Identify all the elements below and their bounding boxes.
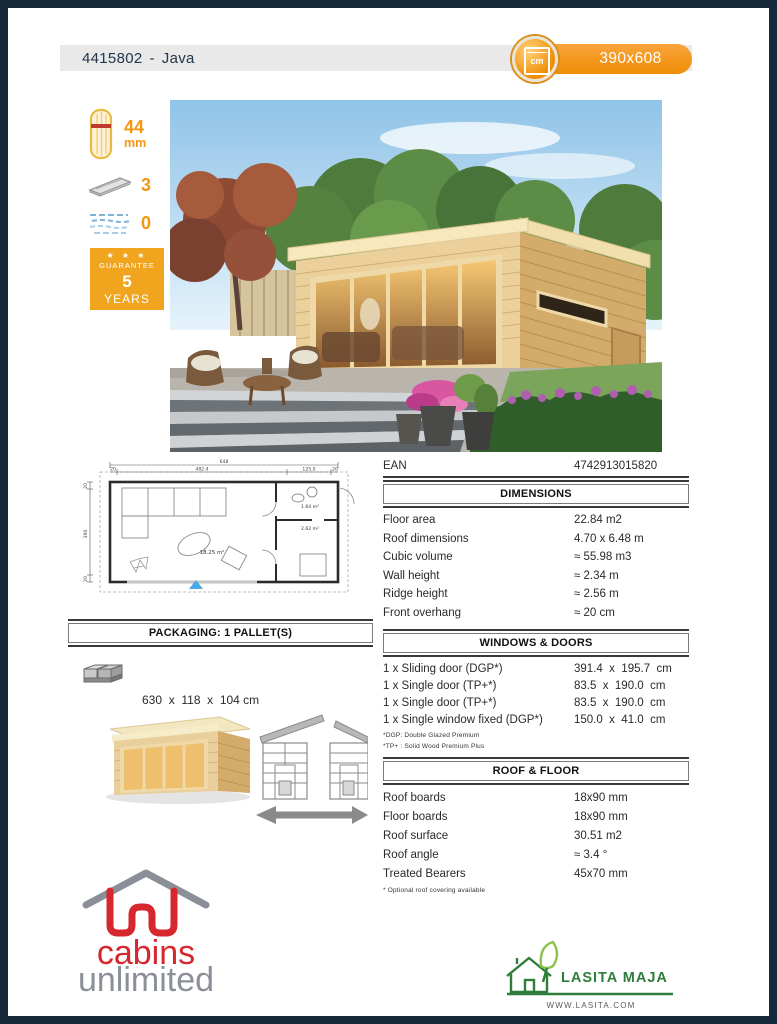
row-value: 391.4 x 195.7 cm (574, 663, 672, 675)
table-row: Front overhang≈ 20 cm (383, 604, 689, 628)
roof-floor-rows: Roof boards18x90 mm Floor boards18x90 mm… (383, 785, 689, 894)
row-label: Roof dimensions (383, 533, 574, 545)
footnote-tp: *TP+ : Solid Wood Premium Plus (383, 743, 689, 755)
row-label: Cubic volume (383, 551, 574, 563)
roof-icon (86, 873, 206, 905)
row-label: 1 x Single door (TP+*) (383, 697, 574, 709)
table-row: 1 x Single door (TP+*)83.5 x 190.0 cm (383, 694, 689, 711)
product-code: 4415802 (82, 50, 143, 67)
table-row: Roof angle≈ 3.4 ° (383, 845, 689, 864)
row-label: Roof boards (383, 792, 574, 804)
windows-doors-title: WINDOWS & DOORS (383, 633, 689, 653)
row-value: 18x90 mm (574, 811, 628, 823)
dimensions-title: DIMENSIONS (383, 484, 689, 504)
pallet-icon (82, 655, 124, 685)
room-bottom-area: 2.62 m² (301, 526, 319, 532)
packaging-section-header: PACKAGING: 1 PALLET(S) (68, 619, 373, 647)
unlimited-wordmark: unlimited (78, 961, 214, 995)
footnote-roof-covering: * Optional roof covering available (383, 887, 689, 894)
row-value: 83.5 x 190.0 cm (574, 680, 665, 692)
table-row: 1 x Single door (TP+*)83.5 x 190.0 cm (383, 677, 689, 694)
dimensions-rows: Floor area22.84 m2 Roof dimensions4.70 x… (383, 508, 689, 627)
table-row: Roof surface30.51 m2 (383, 826, 689, 845)
guarantee-badge: ★ ★ ★ GUARANTEE 5 YEARS (90, 248, 164, 310)
table-row: Roof boards18x90 mm (383, 788, 689, 807)
glazing-lines-icon (88, 210, 132, 236)
ean-value: 4742913015820 (574, 460, 657, 472)
cm-unit-label: cm (524, 47, 550, 75)
cabin-drawings (100, 695, 368, 827)
table-row: Ridge height≈ 2.56 m (383, 585, 689, 604)
lasita-wordmark: LASITA MAJA (561, 970, 668, 986)
room-top-area: 1.64 m² (301, 504, 319, 510)
row-label: 1 x Sliding door (DGP*) (383, 663, 574, 675)
table-row: Cubic volume≈ 55.98 m3 (383, 548, 689, 567)
room-main-area: 18.25 m² (200, 549, 225, 556)
row-value: ≈ 3.4 ° (574, 849, 607, 861)
row-value: 18x90 mm (574, 792, 628, 804)
roof-floor-title: ROOF & FLOOR (383, 761, 689, 781)
floor-plan: 648 20 482.4 125.0 20 20 390 20 18.25 m²… (72, 458, 372, 620)
guarantee-stars: ★ ★ ★ (90, 251, 164, 261)
row-value: 4.70 x 6.48 m (574, 533, 644, 545)
roof-panel-icon (88, 172, 132, 198)
row-label: Floor boards (383, 811, 574, 823)
row-value: ≈ 55.98 m3 (574, 551, 631, 563)
leaf-icon (541, 942, 557, 968)
packaging-title: PACKAGING: 1 PALLET(S) (68, 623, 373, 643)
header-separator: - (150, 50, 155, 67)
spec-sheet-page: 4415802 - Java 390x608 cm 44 mm (0, 0, 777, 1024)
cm-measure-icon: cm (512, 36, 558, 82)
table-row: Roof dimensions4.70 x 6.48 m (383, 530, 689, 549)
plan-dim-left-pad: 20 (110, 467, 116, 473)
glazing-value: 0 (141, 214, 151, 232)
row-value: 45x70 mm (574, 868, 628, 880)
row-label: Treated Bearers (383, 868, 574, 880)
table-row: Wall height≈ 2.34 m (383, 567, 689, 586)
table-row: Floor area22.84 m2 (383, 511, 689, 530)
roof-floor-section-header: ROOF & FLOOR (383, 757, 689, 785)
plan-dim-vpad-bottom: 20 (83, 576, 89, 582)
wall-thickness-unit: mm (124, 137, 146, 150)
row-label: 1 x Single door (TP+*) (383, 680, 574, 692)
ean-label: EAN (383, 460, 574, 472)
row-value: 83.5 x 190.0 cm (574, 697, 665, 709)
row-label: Roof surface (383, 830, 574, 842)
row-value: ≈ 20 cm (574, 607, 615, 619)
row-label: Wall height (383, 570, 574, 582)
row-value: 150.0 x 41.0 cm (574, 714, 665, 726)
product-name: Java (162, 50, 195, 67)
guarantee-years-value: 5 (90, 271, 164, 292)
row-label: Floor area (383, 514, 574, 526)
guarantee-years-unit: YEARS (90, 292, 164, 307)
spec-tables: EAN 4742913015820 DIMENSIONS Floor area2… (383, 460, 689, 894)
table-row: Treated Bearers45x70 mm (383, 864, 689, 883)
plan-dim-height: 390 (83, 530, 89, 539)
row-label: Roof angle (383, 849, 574, 861)
row-value: 30.51 m2 (574, 830, 622, 842)
footnote-dgp: *DGP: Double Glazed Premium (383, 732, 689, 739)
log-profile-icon (88, 108, 115, 160)
product-photo (170, 100, 662, 452)
table-row: Floor boards18x90 mm (383, 807, 689, 826)
ean-row: EAN 4742913015820 (383, 460, 689, 478)
plan-dim-main: 482.4 (195, 467, 208, 473)
row-value: ≈ 2.56 m (574, 588, 619, 600)
plan-dim-total: 648 (220, 459, 229, 465)
dimensions-section-header: DIMENSIONS (383, 480, 689, 508)
plan-dim-side: 125.0 (302, 467, 315, 473)
cabin-mark-icon (110, 891, 174, 933)
lasita-url: WWW.LASITA.COM (546, 1001, 635, 1010)
size-badge-label: 390x608 (599, 50, 661, 68)
wall-thickness-number: 44 (124, 118, 146, 137)
cabins-unlimited-logo: cabins unlimited (58, 863, 243, 995)
lasita-maja-logo: LASITA MAJA WWW.LASITA.COM (503, 938, 678, 1014)
plan-dim-vpad-top: 20 (83, 483, 89, 489)
pallets-value: 3 (141, 176, 151, 194)
guarantee-label: GUARANTEE (90, 261, 164, 270)
size-badge: 390x608 (535, 44, 692, 74)
row-label: Front overhang (383, 607, 574, 619)
reversible-arrow-icon (256, 806, 368, 824)
windows-doors-section-header: WINDOWS & DOORS (383, 629, 689, 657)
wall-thickness-value: 44 mm (124, 118, 146, 150)
row-value: 22.84 m2 (574, 514, 622, 526)
row-label: Ridge height (383, 588, 574, 600)
row-value: ≈ 2.34 m (574, 570, 619, 582)
table-row: 1 x Single window fixed (DGP*)150.0 x 41… (383, 711, 689, 728)
windows-doors-rows: 1 x Sliding door (DGP*)391.4 x 195.7 cm … (383, 657, 689, 755)
plan-dim-right-pad: 20 (332, 467, 338, 473)
row-label: 1 x Single window fixed (DGP*) (383, 714, 574, 726)
table-row: 1 x Sliding door (DGP*)391.4 x 195.7 cm (383, 660, 689, 677)
